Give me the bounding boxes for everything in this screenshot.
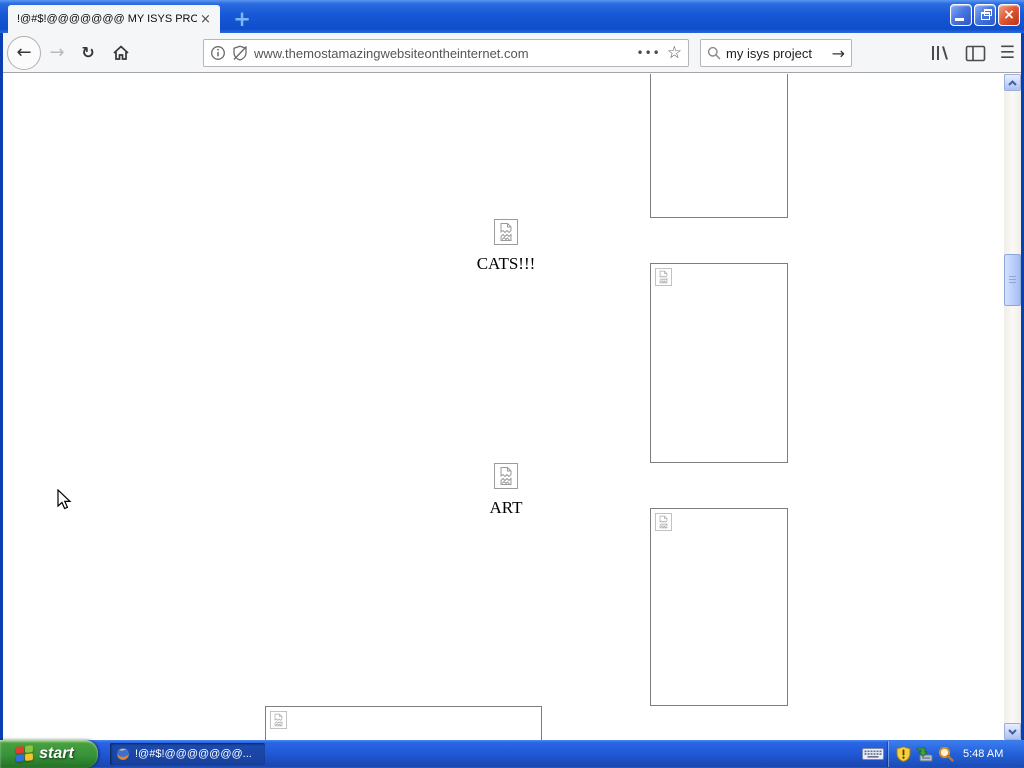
taskbar-clock[interactable]: 5:48 AM [963, 748, 1003, 760]
broken-image-box-mid-right [650, 263, 788, 463]
close-button[interactable]: × [998, 4, 1020, 26]
broken-image-icon [494, 219, 518, 245]
windows-flag-icon [16, 745, 34, 763]
broken-image-icon [494, 463, 518, 489]
navigation-toolbar: ← → ↻ ••• [3, 33, 1021, 73]
tracking-protection-disabled-icon[interactable] [232, 45, 248, 61]
scroll-down-button[interactable] [1004, 723, 1021, 740]
library-icon[interactable] [929, 44, 951, 62]
search-input[interactable] [726, 46, 827, 61]
back-button[interactable]: ← [7, 36, 41, 70]
forward-button[interactable]: → [44, 38, 70, 68]
window-controls: × [950, 4, 1020, 26]
keyboard-icon [862, 747, 884, 761]
cats-label[interactable]: CATS!!! [463, 254, 549, 274]
url-bar[interactable]: ••• ☆ [203, 39, 689, 67]
broken-image-icon [655, 513, 672, 531]
broken-image-box-bottom-right [650, 508, 788, 706]
broken-image-box-top-right [650, 74, 788, 218]
chevron-up-icon [1008, 80, 1017, 86]
taskbar-item-label: !@#$!@@@@@@@... [135, 748, 252, 760]
page-content: CATS!!! ART [3, 74, 1004, 740]
taskbar-item-browser[interactable]: !@#$!@@@@@@@... [110, 743, 265, 765]
search-bar[interactable]: → [700, 39, 852, 67]
home-icon [111, 43, 131, 63]
chevron-down-icon [1008, 729, 1017, 735]
bookmark-star-icon[interactable]: ☆ [667, 43, 682, 63]
broken-image-box-bottom-wide [265, 706, 542, 740]
page-info-icon[interactable] [210, 45, 226, 61]
cats-link[interactable]: CATS!!! [463, 219, 549, 274]
scroll-up-button[interactable] [1004, 74, 1021, 91]
art-label[interactable]: ART [463, 498, 549, 518]
mouse-cursor [57, 489, 76, 511]
toolbar-right-icons: ☰ [929, 33, 1015, 73]
scrollbar-thumb[interactable] [1004, 254, 1021, 306]
search-go-button[interactable]: → [832, 44, 845, 63]
taskbar: start !@#$!@@@@@@@... [0, 740, 1024, 768]
language-bar[interactable] [858, 740, 888, 768]
page-actions-icon[interactable]: ••• [637, 46, 661, 60]
window-titlebar: !@#$!@@@@@@@ MY ISYS PROJEC × + × [0, 0, 1024, 33]
start-button[interactable]: start [0, 740, 98, 768]
desktop-screen: !@#$!@@@@@@@ MY ISYS PROJEC × + × ← → ↻ [0, 0, 1024, 768]
magnifier-icon[interactable] [938, 746, 954, 762]
browser-tab[interactable]: !@#$!@@@@@@@ MY ISYS PROJEC × [8, 5, 220, 33]
reload-button[interactable]: ↻ [75, 38, 101, 68]
firefox-icon [116, 747, 130, 761]
tab-title: !@#$!@@@@@@@ MY ISYS PROJEC [17, 13, 197, 25]
home-button[interactable] [107, 38, 135, 68]
new-tab-button[interactable]: + [227, 5, 257, 33]
broken-image-icon [270, 711, 287, 729]
minimize-icon [955, 18, 964, 21]
url-input[interactable] [254, 46, 631, 61]
hamburger-menu-icon[interactable]: ☰ [1000, 43, 1015, 63]
start-button-label: start [39, 745, 82, 763]
minimize-button[interactable] [950, 4, 972, 26]
sidebar-icon[interactable] [965, 45, 986, 62]
search-icon [707, 46, 721, 60]
safely-remove-hardware-icon[interactable] [916, 747, 933, 762]
restore-button[interactable] [974, 4, 996, 26]
art-link[interactable]: ART [463, 463, 549, 518]
browser-window: ← → ↻ ••• [3, 33, 1021, 740]
tab-close-icon[interactable]: × [197, 11, 214, 28]
security-shield-icon[interactable] [896, 746, 911, 762]
system-tray: 5:48 AM [888, 741, 1024, 767]
broken-image-icon [655, 268, 672, 286]
vertical-scrollbar[interactable] [1004, 74, 1021, 740]
